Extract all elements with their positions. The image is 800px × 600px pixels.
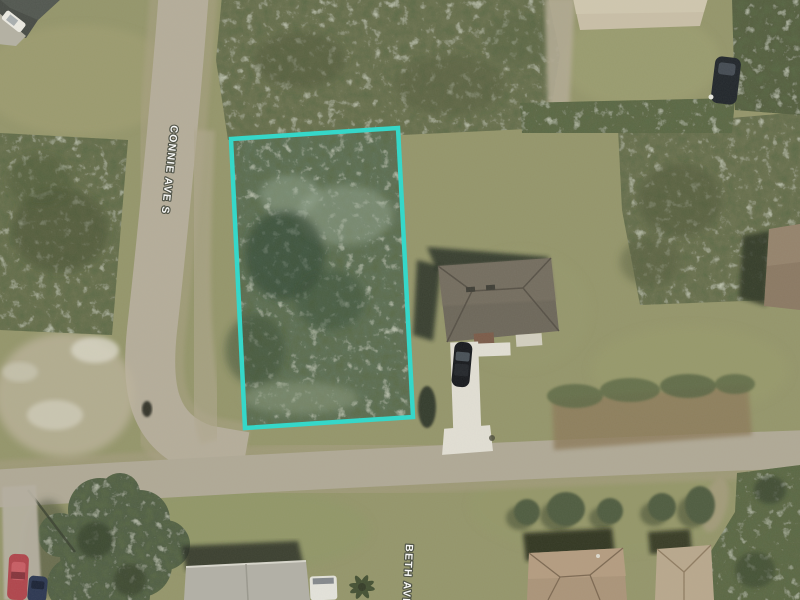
aerial-photo: CONNIE AVE S BETH AVE S bbox=[0, 0, 800, 600]
house-top-right bbox=[573, 0, 708, 30]
mailbox bbox=[489, 435, 495, 441]
house-right-edge bbox=[739, 224, 800, 310]
walkway bbox=[516, 333, 543, 347]
small-tree bbox=[418, 386, 436, 428]
blue-car bbox=[27, 575, 48, 600]
white-van bbox=[310, 576, 338, 600]
red-car bbox=[7, 554, 29, 600]
roof-vent bbox=[486, 285, 495, 291]
roof-vent bbox=[466, 287, 475, 293]
house-bottom-right-large bbox=[523, 528, 627, 600]
debris-on-road bbox=[142, 401, 152, 417]
house-bottom-center bbox=[182, 541, 310, 600]
listing-aerial-image: CONNIE AVE S BETH AVE S bbox=[0, 0, 800, 600]
